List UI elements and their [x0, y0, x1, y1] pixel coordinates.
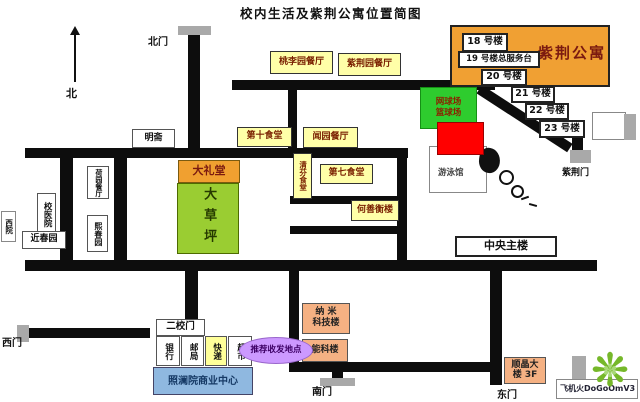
red-highlight-block: [437, 122, 484, 155]
north-gate-cap: [178, 26, 211, 35]
nano-tech-building: 纳 米 科技楼: [302, 303, 350, 334]
east-gate-label: 东门: [497, 386, 517, 401]
road-east-gate-vertical: [490, 271, 502, 385]
road-second-gate-vertical: [185, 264, 198, 322]
road-main-horizontal: [25, 148, 408, 158]
road-horizontal-4: [290, 226, 402, 234]
road-west-vertical-2: [114, 153, 127, 265]
building-22: 22 号楼: [525, 103, 569, 120]
zijing-apartments-label: 紫荆公寓: [538, 42, 610, 63]
canteen-7: 第七食堂: [320, 164, 373, 184]
shunjing-label-line2: 楼 3F: [513, 371, 538, 381]
doodle-tick2-icon: [529, 203, 537, 207]
shunjing-building: 顺晶大 楼 3F: [504, 357, 546, 384]
road-west-gate: [28, 328, 150, 338]
second-gate-box: 二校门: [156, 319, 205, 336]
basketball-court-label: 篮球场: [436, 109, 462, 118]
zijing-gate-cap: [570, 150, 591, 163]
south-gate-label: 南门: [312, 383, 332, 398]
right-edge-gate-bar: [624, 114, 636, 140]
road-north-gate: [188, 30, 200, 153]
express-mail-shop: 快递: [205, 336, 227, 366]
doodle-circle-small-icon: [511, 185, 524, 198]
campus-hospital: 校医院: [37, 193, 56, 236]
xichunyuan-garden: 熙春园: [87, 215, 108, 252]
xiyuan-block: 西院: [1, 211, 16, 242]
post-office-shop: 邮局: [181, 336, 204, 366]
doodle-tick-icon: [521, 196, 529, 201]
compass-north-label: 北: [66, 85, 77, 101]
right-edge-box: [592, 112, 626, 140]
compass-arrow-head-icon: [70, 26, 80, 35]
zijingyuan-canteen: 紫荆园餐厅: [338, 53, 401, 76]
mingzhai-building: 明斋: [132, 129, 175, 148]
tennis-court-label: 网球场: [436, 98, 462, 107]
heshanheng-building: 何善衡楼: [351, 200, 399, 221]
nano-label-line2: 科技楼: [312, 319, 339, 329]
compass-arrow-line: [74, 34, 76, 82]
campus-map: 校内生活及紫荆公寓位置简图 北 北门 西门 南门 东门 紫荆门 紫荆公寓 18 …: [0, 0, 640, 402]
recommended-mail-spot-callout: 推荐收发地点: [239, 337, 313, 364]
big-lawn: 大草坪: [177, 183, 239, 254]
natatorium-label: 游泳馆: [438, 169, 464, 178]
zijing-gate-label: 紫荆门: [562, 165, 589, 178]
road-south-horizontal: [289, 362, 502, 372]
jinchunyuan-garden: 近春园: [22, 231, 66, 249]
wenyuan-canteen: 闻园餐厅: [303, 127, 358, 148]
canteen-10: 第十食堂: [237, 127, 292, 147]
building-18: 18 号楼: [462, 33, 508, 52]
auditorium: 大礼堂: [178, 160, 240, 183]
taoliyuan-canteen: 桃李园餐厅: [270, 51, 333, 74]
bank-shop: 银行: [156, 336, 180, 366]
watermark-flower-center-icon: ✽: [598, 360, 622, 384]
west-gate-label: 西门: [2, 334, 22, 349]
nano-label-line1: 纳 米: [315, 308, 336, 318]
central-main-building: 中央主楼: [455, 236, 557, 257]
heyuan-canteen: 荷园餐厅: [87, 166, 109, 199]
qingfen-canteen: 清芬食堂: [293, 153, 312, 199]
building-19-service-desk: 19 号楼总服务台: [458, 51, 540, 68]
doodle-circle-icon: [499, 170, 514, 185]
north-gate-label: 北门: [148, 33, 168, 48]
building-23: 23 号楼: [539, 120, 585, 138]
road-mid-horizontal: [25, 260, 597, 271]
zhaolanyuan-commercial-center: 照澜院商业中心: [153, 367, 253, 395]
page-title: 校内生活及紫荆公寓位置简图: [240, 3, 422, 22]
building-20: 20 号楼: [481, 69, 527, 86]
building-21: 21 号楼: [511, 86, 555, 103]
